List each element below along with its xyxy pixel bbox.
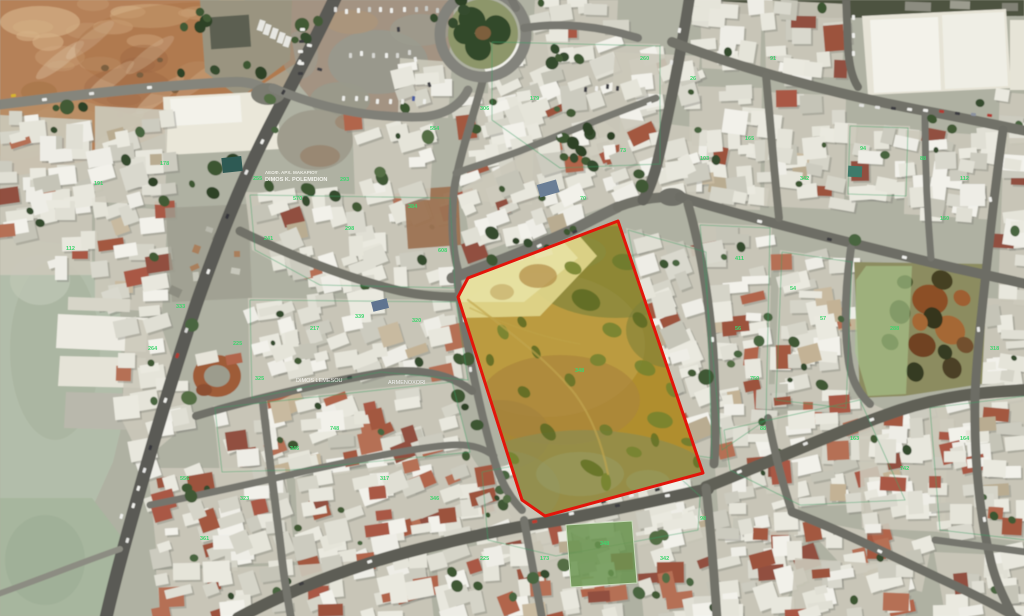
svg-text:225: 225: [233, 341, 242, 347]
svg-text:98: 98: [700, 516, 706, 522]
svg-text:88: 88: [760, 426, 766, 432]
svg-text:342: 342: [660, 556, 669, 562]
svg-text:323: 323: [240, 496, 249, 502]
svg-text:333: 333: [176, 304, 185, 310]
svg-text:173: 173: [540, 556, 549, 562]
svg-text:73: 73: [620, 148, 626, 154]
svg-text:165: 165: [745, 136, 754, 142]
svg-text:742: 742: [900, 466, 909, 472]
svg-text:26: 26: [690, 76, 696, 82]
svg-text:88: 88: [920, 156, 926, 162]
svg-text:348: 348: [600, 541, 609, 547]
svg-text:255: 255: [253, 176, 262, 182]
svg-text:179: 179: [530, 96, 539, 102]
svg-text:748: 748: [330, 426, 339, 432]
svg-text:348: 348: [575, 368, 584, 374]
svg-text:94: 94: [860, 146, 867, 152]
svg-text:298: 298: [345, 226, 354, 232]
svg-text:225: 225: [480, 556, 489, 562]
svg-text:191: 191: [94, 181, 103, 187]
svg-text:178: 178: [160, 161, 169, 167]
svg-text:325: 325: [255, 376, 264, 382]
svg-text:608: 608: [438, 248, 447, 254]
svg-text:320: 320: [412, 318, 421, 324]
svg-text:554: 554: [430, 126, 440, 132]
svg-text:339: 339: [355, 314, 364, 320]
svg-text:ΛΕΩΦ. ΑΡΧ. ΜΑΚΑΡΙΟΥ: ΛΕΩΦ. ΑΡΧ. ΜΑΚΑΡΙΟΥ: [265, 170, 318, 175]
svg-text:346: 346: [430, 496, 439, 502]
svg-text:288: 288: [890, 326, 899, 332]
svg-text:ARMENOXORI: ARMENOXORI: [388, 380, 426, 386]
svg-text:56: 56: [735, 326, 741, 332]
svg-text:54: 54: [790, 286, 797, 292]
svg-text:750: 750: [750, 376, 759, 382]
svg-text:346: 346: [290, 446, 299, 452]
svg-text:103: 103: [700, 156, 709, 162]
svg-text:306: 306: [480, 106, 489, 112]
svg-text:411: 411: [735, 256, 744, 262]
svg-text:70: 70: [580, 196, 586, 202]
svg-text:264: 264: [148, 346, 158, 352]
svg-text:260: 260: [640, 56, 649, 62]
svg-text:163: 163: [850, 436, 859, 442]
svg-text:217: 217: [310, 326, 319, 332]
svg-text:556: 556: [180, 476, 189, 482]
svg-text:570: 570: [293, 196, 302, 202]
svg-text:164: 164: [960, 436, 970, 442]
svg-text:384: 384: [408, 204, 418, 210]
svg-text:112: 112: [960, 176, 969, 182]
svg-text:241: 241: [264, 236, 273, 242]
svg-text:293: 293: [340, 177, 349, 183]
svg-text:361: 361: [200, 536, 209, 542]
svg-text:91: 91: [770, 56, 776, 62]
svg-text:DIMOS K. POLEMIDION: DIMOS K. POLEMIDION: [265, 177, 327, 183]
svg-text:150: 150: [940, 216, 949, 222]
svg-text:DIMOS LEMESOU: DIMOS LEMESOU: [296, 378, 342, 384]
svg-text:112: 112: [66, 246, 75, 252]
svg-text:57: 57: [820, 316, 826, 322]
svg-text:318: 318: [990, 346, 999, 352]
svg-text:342: 342: [800, 176, 809, 182]
svg-text:317: 317: [380, 476, 389, 482]
